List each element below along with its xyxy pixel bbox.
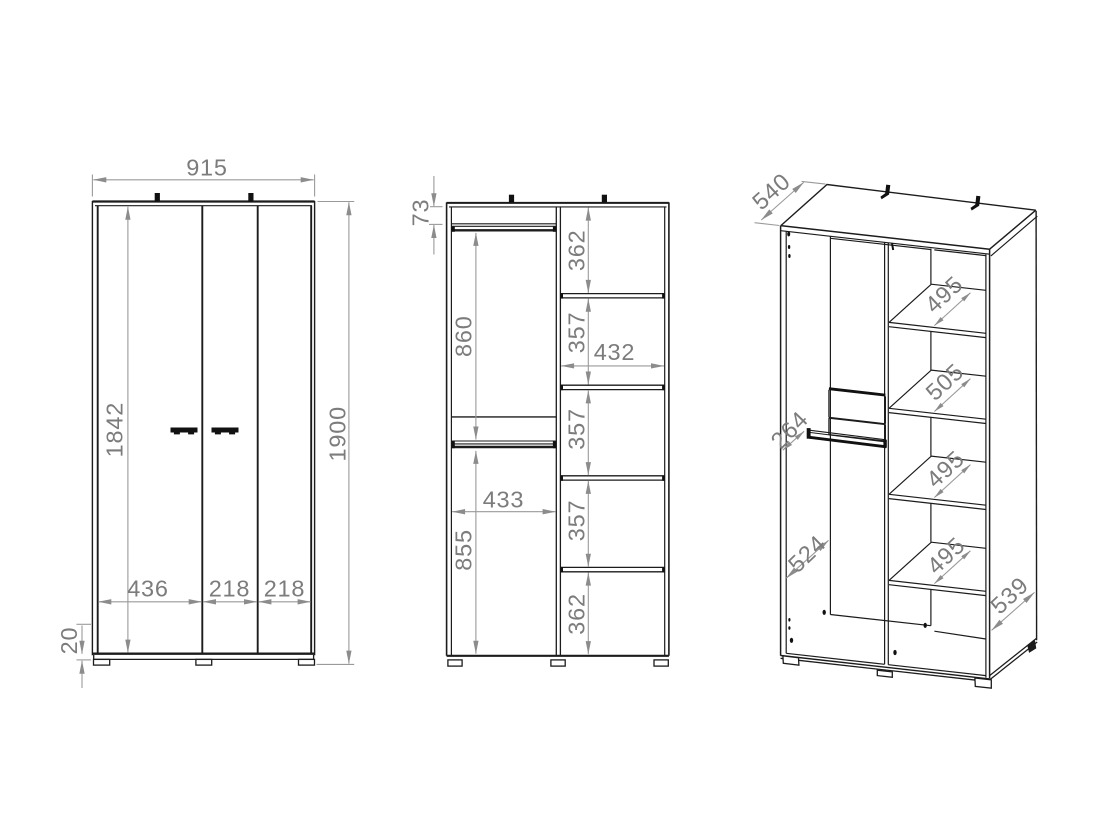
svg-text:357: 357 bbox=[564, 408, 590, 450]
svg-text:915: 915 bbox=[186, 154, 228, 180]
svg-text:218: 218 bbox=[264, 576, 306, 602]
svg-text:357: 357 bbox=[564, 312, 590, 354]
svg-text:495: 495 bbox=[922, 532, 970, 579]
svg-text:1842: 1842 bbox=[102, 402, 128, 457]
svg-text:362: 362 bbox=[564, 229, 590, 271]
svg-text:539: 539 bbox=[985, 572, 1033, 619]
svg-text:860: 860 bbox=[450, 315, 476, 357]
svg-text:495: 495 bbox=[920, 271, 968, 318]
svg-text:433: 433 bbox=[483, 486, 525, 512]
svg-text:73: 73 bbox=[407, 199, 433, 227]
svg-text:540: 540 bbox=[747, 168, 795, 215]
svg-text:505: 505 bbox=[921, 358, 969, 405]
svg-text:1900: 1900 bbox=[325, 406, 351, 461]
svg-text:264: 264 bbox=[766, 406, 814, 454]
svg-text:495: 495 bbox=[921, 445, 969, 492]
svg-text:357: 357 bbox=[564, 500, 590, 542]
svg-text:218: 218 bbox=[209, 576, 251, 602]
svg-text:362: 362 bbox=[564, 593, 590, 635]
svg-text:524: 524 bbox=[783, 530, 831, 578]
svg-text:20: 20 bbox=[56, 627, 82, 655]
svg-text:855: 855 bbox=[450, 529, 476, 571]
svg-text:436: 436 bbox=[127, 576, 169, 602]
svg-text:432: 432 bbox=[594, 339, 636, 365]
